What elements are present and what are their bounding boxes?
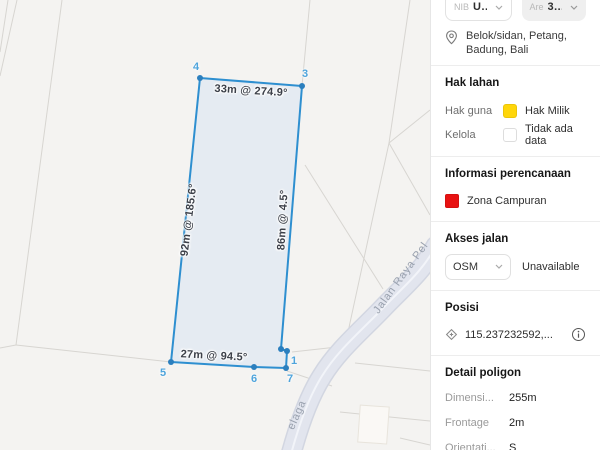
vertex-dot-3[interactable] <box>299 83 305 89</box>
hak-milik-swatch <box>503 104 517 118</box>
row-value: 255m <box>509 392 537 404</box>
app-window: Jalan Raya Pel elaga 33m @ 274.9° 92m @ … <box>0 0 600 450</box>
osm-source-select[interactable]: OSM <box>445 254 511 280</box>
are-select[interactable]: Are 30.0 <box>522 0 587 21</box>
info-sidebar: NIB Und... Are 30.0 <box>430 0 600 450</box>
location-row: Belok/sidan, Petang, Badung, Bali <box>431 21 600 65</box>
road-access-status: Unavailable <box>522 261 579 273</box>
location-text: Belok/sidan, Petang, Badung, Bali <box>466 29 586 58</box>
map-canvas[interactable]: Jalan Raya Pel elaga 33m @ 274.9° 92m @ … <box>0 0 430 450</box>
row-label: Hak guna <box>445 105 503 117</box>
akses-row: OSM Unavailable <box>445 253 586 281</box>
vertex-dot-6[interactable] <box>251 364 257 370</box>
row-label: Orientati... <box>445 442 509 450</box>
section-title: Posisi <box>445 302 586 314</box>
section-title: Informasi perencanaan <box>445 168 586 180</box>
map-base-svg <box>0 0 430 450</box>
row-label: Frontage <box>445 417 509 429</box>
nib-select[interactable]: NIB Und... <box>445 0 512 21</box>
parcel-polygon[interactable] <box>171 78 302 368</box>
detail-row-dimensi: Dimensi... 255m <box>445 392 586 404</box>
osm-select-value: OSM <box>453 261 478 273</box>
top-select-row: NIB Und... Are 30.0 <box>431 0 600 21</box>
zona-campuran-swatch <box>445 194 459 208</box>
map-pin-icon <box>445 30 458 45</box>
nib-select-prefix: NIB <box>454 2 469 12</box>
section-akses-jalan: Akses jalan OSM Unavailable <box>431 221 600 290</box>
are-select-value: 30.0 <box>548 1 562 13</box>
row-value: S <box>509 442 516 450</box>
section-title: Akses jalan <box>445 233 586 245</box>
zona-row: Zona Campuran <box>445 190 586 212</box>
coordinates-value: 115.237232592,... <box>465 329 553 341</box>
info-icon[interactable] <box>571 327 586 342</box>
vertex-dot-4[interactable] <box>197 75 203 81</box>
section-detail-poligon: Detail poligon Dimensi... 255m Frontage … <box>431 355 600 450</box>
vertex-dot-5[interactable] <box>168 359 174 365</box>
chevron-down-icon <box>495 5 503 10</box>
section-posisi: Posisi 115.237232592,... <box>431 290 600 355</box>
detail-row-frontage: Frontage 2m <box>445 417 586 429</box>
section-informasi-perencanaan: Informasi perencanaan Zona Campuran <box>431 156 600 221</box>
nib-select-value: Und... <box>473 1 486 13</box>
are-select-prefix: Are <box>530 2 544 12</box>
row-label: Kelola <box>445 129 503 141</box>
locate-crosshair-icon <box>445 328 458 341</box>
hak-guna-row: Hak guna Hak Milik <box>445 99 586 123</box>
no-data-swatch <box>503 128 517 142</box>
row-value: Tidak ada data <box>525 123 586 147</box>
row-label: Dimensi... <box>445 392 509 404</box>
kelola-row: Kelola Tidak ada data <box>445 123 586 147</box>
vertex-dot-7[interactable] <box>283 365 289 371</box>
vertex-dot-1[interactable] <box>284 348 290 354</box>
building-footprint <box>358 405 390 444</box>
section-title: Detail poligon <box>445 367 586 379</box>
section-title: Hak lahan <box>445 77 586 89</box>
section-hak-lahan: Hak lahan Hak guna Hak Milik Kelola Tida… <box>431 65 600 156</box>
chevron-down-icon <box>495 264 503 269</box>
detail-row-orientation: Orientati... S <box>445 442 586 450</box>
vertex-dot-2[interactable] <box>278 346 284 352</box>
row-value: 2m <box>509 417 524 429</box>
position-row: 115.237232592,... <box>445 324 586 346</box>
chevron-down-icon <box>570 5 578 10</box>
row-value: Hak Milik <box>525 105 570 117</box>
zone-value: Zona Campuran <box>467 195 547 207</box>
